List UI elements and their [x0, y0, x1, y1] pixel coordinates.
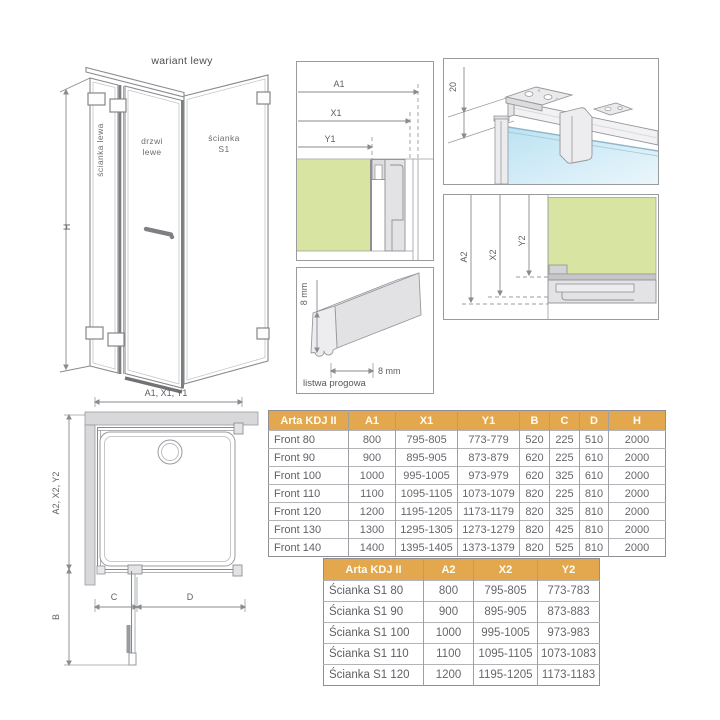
dimension-cell: 1100 — [349, 485, 396, 503]
x1-dim-label: X1 — [330, 108, 341, 118]
dimension-cell: 873-883 — [538, 602, 600, 623]
dimension-cell: 1000 — [349, 467, 396, 485]
row-label: Front 100 — [269, 467, 349, 485]
hinge-brackets — [86, 92, 270, 346]
table-row: Front 1001000995-1005973-979620325610200… — [269, 467, 666, 485]
column-header: X1 — [396, 411, 458, 431]
threshold-width-dim: 8 mm — [378, 366, 401, 376]
y1-dim-label: Y1 — [324, 134, 335, 144]
side-panel-dimensions-table: Arta KDJ IIA2X2Y2 Ścianka S1 80800795-80… — [323, 558, 600, 686]
a2-dim-label: A2 — [459, 251, 469, 262]
dimension-cell: 873-879 — [458, 449, 520, 467]
door-label-line1: drzwi — [141, 136, 163, 146]
dimension-cell: 620 — [520, 467, 550, 485]
dimension-cell: 610 — [580, 449, 609, 467]
dimension-cell: 510 — [580, 431, 609, 449]
dimension-cell: 225 — [550, 485, 580, 503]
row-label: Front 90 — [269, 449, 349, 467]
dimension-cell: 225 — [550, 449, 580, 467]
dimension-cell: 800 — [349, 431, 396, 449]
plan-view-drawing: A1, X1, Y1 — [40, 385, 275, 697]
dimension-cell: 800 — [424, 581, 474, 602]
dimension-cell: 900 — [424, 602, 474, 623]
dimension-cell: 525 — [550, 539, 580, 557]
column-header: Y2 — [538, 559, 600, 581]
dimension-cell: 1400 — [349, 539, 396, 557]
dimension-cell: 900 — [349, 449, 396, 467]
column-header: Arta KDJ II — [269, 411, 349, 431]
dimension-cell: 973-983 — [538, 623, 600, 644]
dimension-cell: 973-979 — [458, 467, 520, 485]
dimension-cell: 2000 — [609, 467, 666, 485]
x2-dim-label: X2 — [488, 249, 498, 260]
dimension-cell: 820 — [520, 521, 550, 539]
table-row: Ścianka S1 80800795-805773-783 — [324, 581, 600, 602]
dimension-cell: 425 — [550, 521, 580, 539]
height-dim-label: H — [62, 224, 72, 231]
dimension-cell: 1373-1379 — [458, 539, 520, 557]
column-header: X2 — [474, 559, 538, 581]
row-label: Ścianka S1 120 — [324, 665, 424, 686]
column-header: D — [580, 411, 609, 431]
dimension-cell: 995-1005 — [396, 467, 458, 485]
y2-dim-label: Y2 — [517, 235, 527, 246]
plan-b-dim-label: B — [51, 614, 61, 620]
table-row: Front 11011001095-11051073-1079820225810… — [269, 485, 666, 503]
dimension-cell: 1273-1279 — [458, 521, 520, 539]
dimension-cell: 1395-1405 — [396, 539, 458, 557]
dimension-cell: 895-905 — [474, 602, 538, 623]
dimension-cell: 2000 — [609, 431, 666, 449]
column-header: B — [520, 411, 550, 431]
threshold-caption: listwa progowa — [303, 378, 367, 389]
glass-clamp — [560, 108, 592, 164]
dimension-cell: 1000 — [424, 623, 474, 644]
table-row: Front 90900895-905873-8796202256102000 — [269, 449, 666, 467]
row-label: Front 110 — [269, 485, 349, 503]
table-row: Front 14014001395-14051373-1379820525810… — [269, 539, 666, 557]
isometric-view-drawing: wariant lewy H — [40, 45, 285, 400]
column-header: A1 — [349, 411, 396, 431]
dimension-cell: 2000 — [609, 503, 666, 521]
row-label: Ścianka S1 110 — [324, 644, 424, 665]
table-row: Ścianka S1 11011001095-11051073-1083 — [324, 644, 600, 665]
dimension-cell: 1295-1305 — [396, 521, 458, 539]
dimension-cell: 773-779 — [458, 431, 520, 449]
shower-enclosure-spec-sheet: wariant lewy H — [0, 0, 720, 720]
plan-d-dim-label: D — [187, 592, 194, 602]
dimension-cell: 795-805 — [396, 431, 458, 449]
dimension-cell: 1073-1079 — [458, 485, 520, 503]
table-header-row: Arta KDJ IIA1X1Y1BCDH — [269, 411, 666, 431]
row-label: Front 80 — [269, 431, 349, 449]
dimension-cell: 1173-1183 — [538, 665, 600, 686]
drain — [158, 440, 182, 464]
dimension-cell: 1095-1105 — [396, 485, 458, 503]
dimension-cell: 1195-1205 — [396, 503, 458, 521]
s1-label-line1: ścianka — [208, 133, 240, 143]
door-handle — [146, 229, 174, 239]
dimension-cell: 810 — [580, 503, 609, 521]
column-header: A2 — [424, 559, 474, 581]
dimension-cell: 620 — [520, 449, 550, 467]
wall-left-label: ścianka lewa — [95, 123, 105, 176]
open-door-plan — [127, 571, 137, 665]
row-label: Ścianka S1 80 — [324, 581, 424, 602]
door-label-line2: lewe — [142, 147, 161, 157]
vertical-section-detail: A2 X2 Y2 — [443, 194, 659, 320]
dimension-cell: 1200 — [349, 503, 396, 521]
row-label: Front 140 — [269, 539, 349, 557]
dimension-cell: 225 — [550, 431, 580, 449]
table-row: Front 80800795-805773-7795202255102000 — [269, 431, 666, 449]
column-header: Arta KDJ II — [324, 559, 424, 581]
front-dimensions-table: Arta KDJ IIA1X1Y1BCDH Front 80800795-805… — [268, 410, 666, 557]
dimension-cell: 2000 — [609, 521, 666, 539]
table-header-row: Arta KDJ IIA2X2Y2 — [324, 559, 600, 581]
dimension-cell: 2000 — [609, 449, 666, 467]
dimension-cell: 773-783 — [538, 581, 600, 602]
threshold-height-dim: 8 mm — [299, 283, 309, 306]
dimension-cell: 820 — [520, 503, 550, 521]
dimension-cell: 325 — [550, 503, 580, 521]
dimension-cell: 1173-1179 — [458, 503, 520, 521]
dimension-cell: 1195-1205 — [474, 665, 538, 686]
plan-top-dim-label: A1, X1, Y1 — [145, 388, 188, 398]
dimension-cell: 810 — [580, 485, 609, 503]
table-row: Front 13013001295-13051273-1279820425810… — [269, 521, 666, 539]
dimension-cell: 810 — [580, 521, 609, 539]
dimension-cell: 1095-1105 — [474, 644, 538, 665]
s1-label-line2: S1 — [218, 144, 229, 154]
column-header: H — [609, 411, 666, 431]
row-label: Ścianka S1 100 — [324, 623, 424, 644]
row-label: Front 120 — [269, 503, 349, 521]
plan-c-dim-label: C — [111, 592, 118, 602]
bracket-offset-dim: 20 — [448, 82, 458, 92]
table-row: Ścianka S1 12012001195-12051173-1183 — [324, 665, 600, 686]
dimension-cell: 820 — [520, 485, 550, 503]
top-bracket-detail: 20 — [443, 58, 659, 185]
dimension-cell: 2000 — [609, 485, 666, 503]
dimension-cell: 820 — [520, 539, 550, 557]
dimension-cell: 2000 — [609, 539, 666, 557]
dimension-cell: 795-805 — [474, 581, 538, 602]
row-label: Front 130 — [269, 521, 349, 539]
dimension-cell: 995-1005 — [474, 623, 538, 644]
dimension-cell: 895-905 — [396, 449, 458, 467]
table-row: Ścianka S1 1001000995-1005973-983 — [324, 623, 600, 644]
dimension-cell: 1300 — [349, 521, 396, 539]
dimension-cell: 1100 — [424, 644, 474, 665]
table-row: Front 12012001195-12051173-1179820325810… — [269, 503, 666, 521]
dimension-cell: 1200 — [424, 665, 474, 686]
column-header: C — [550, 411, 580, 431]
plan-left-dim-label: A2, X2, Y2 — [51, 472, 61, 515]
dimension-cell: 610 — [580, 467, 609, 485]
dimension-cell: 325 — [550, 467, 580, 485]
threshold-profile-detail: 8 mm 8 mm listwa progowa — [296, 267, 434, 394]
dimension-cell: 520 — [520, 431, 550, 449]
dimension-cell: 1073-1083 — [538, 644, 600, 665]
horizontal-section-detail: A1 X1 Y1 — [296, 61, 434, 261]
dimension-cell: 810 — [580, 539, 609, 557]
row-label: Ścianka S1 90 — [324, 602, 424, 623]
variant-title: wariant lewy — [150, 55, 213, 67]
table-row: Ścianka S1 90900895-905873-883 — [324, 602, 600, 623]
column-header: Y1 — [458, 411, 520, 431]
a1-dim-label: A1 — [333, 79, 344, 89]
rail-bracket — [594, 103, 632, 115]
